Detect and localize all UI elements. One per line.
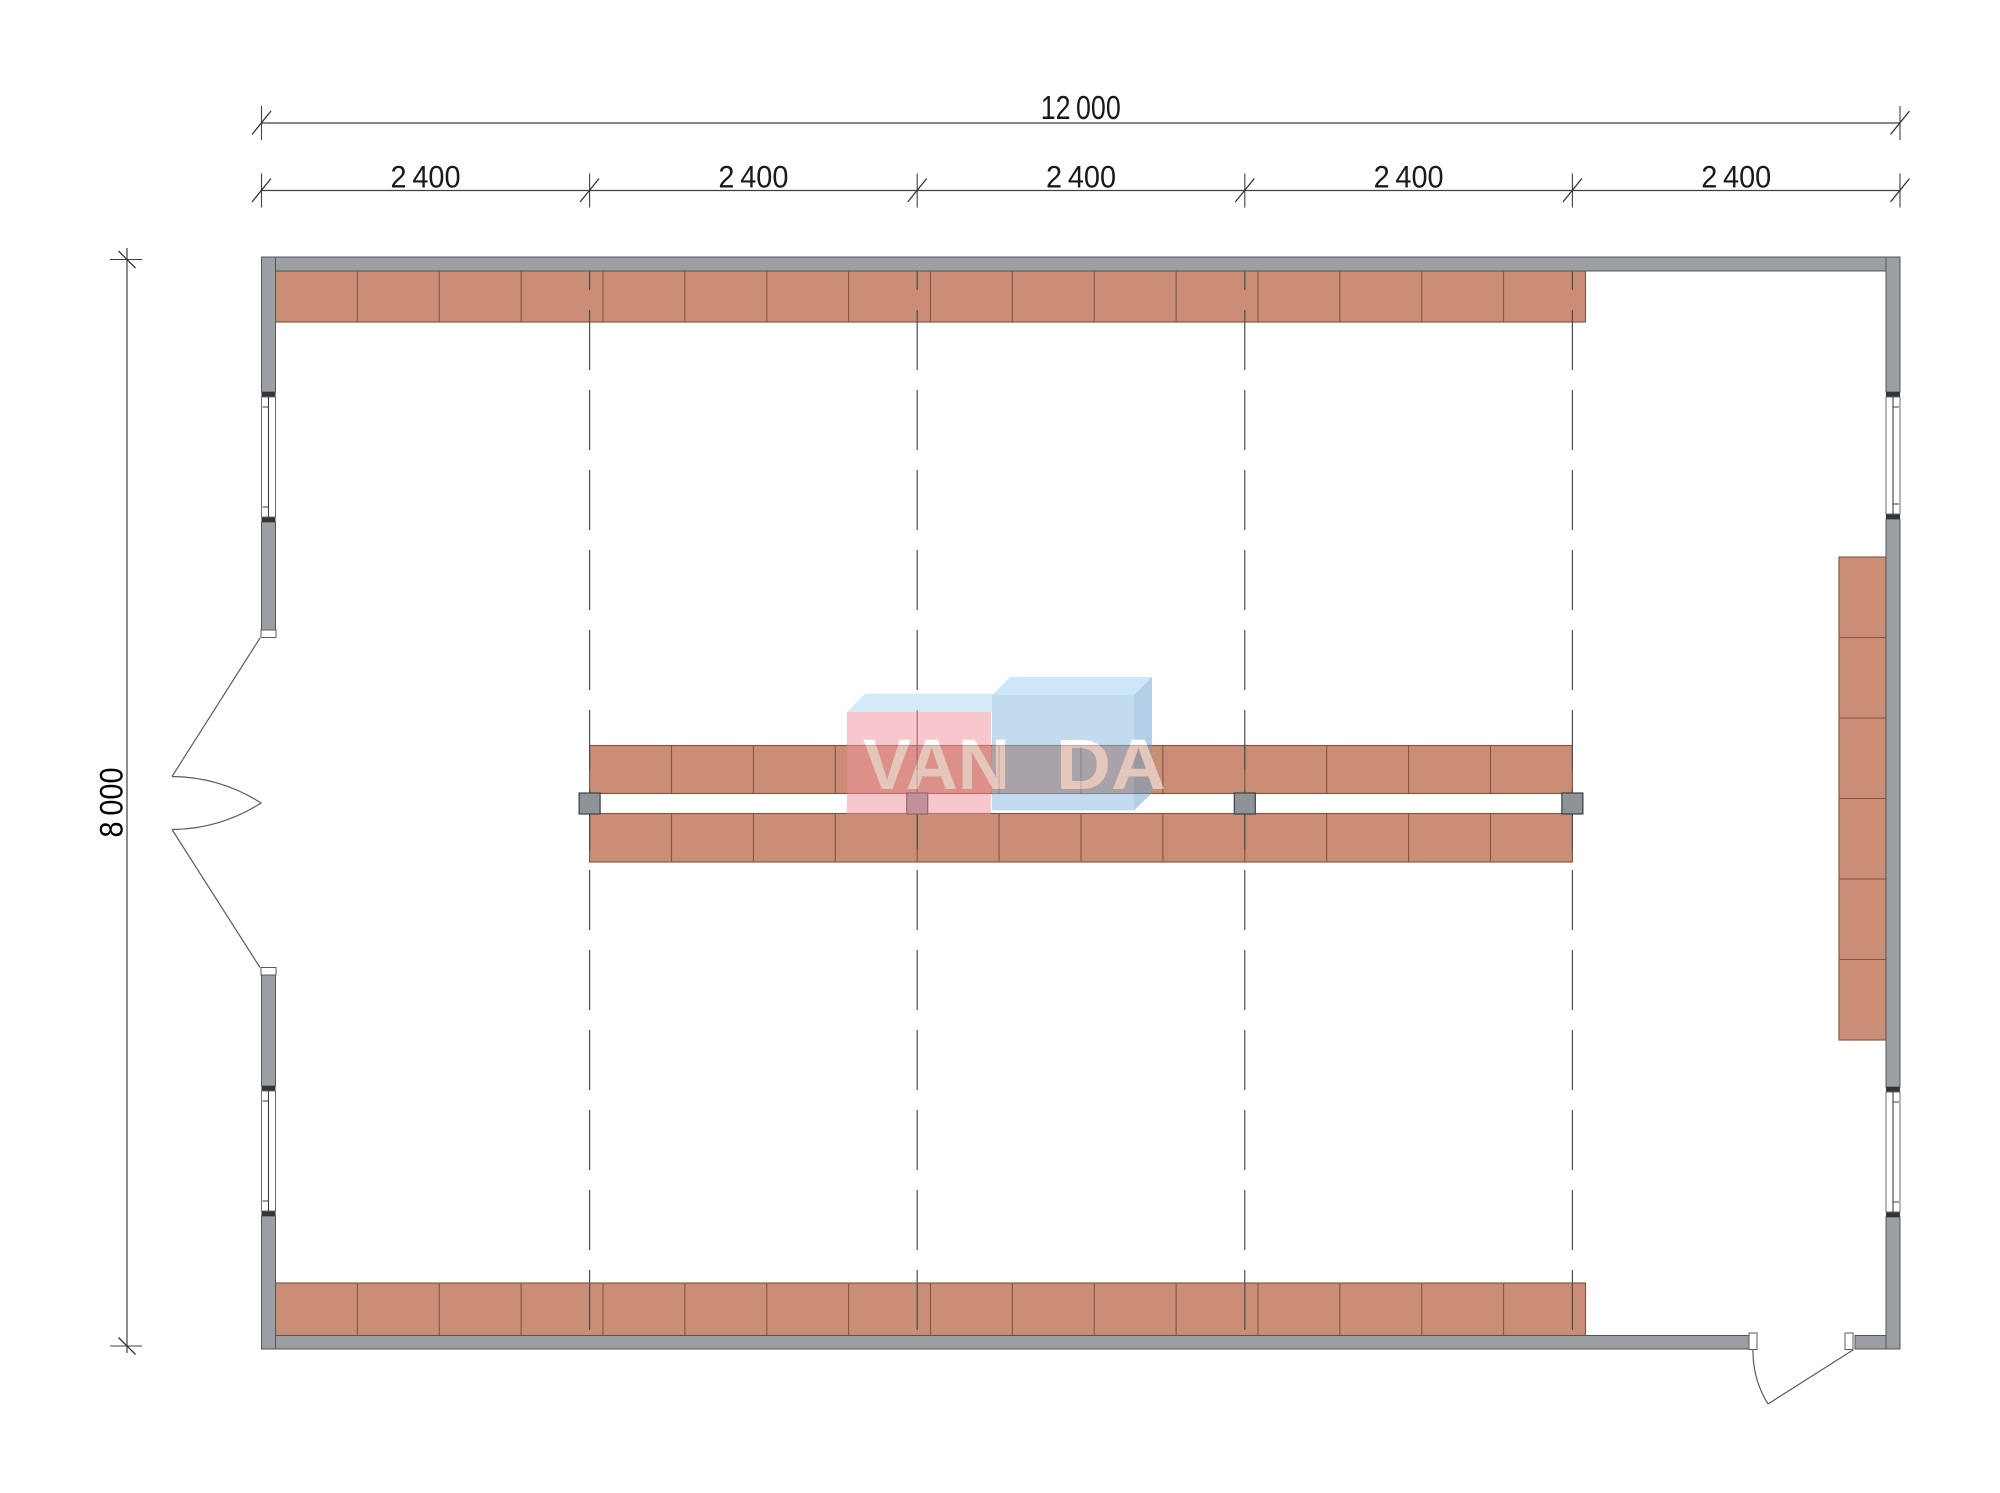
svg-text:12 000: 12 000 xyxy=(1041,89,1121,126)
svg-text:2 400: 2 400 xyxy=(1046,159,1116,195)
svg-text:VAN: VAN xyxy=(863,726,1010,805)
svg-text:2 400: 2 400 xyxy=(1374,159,1444,195)
svg-text:2 400: 2 400 xyxy=(718,159,788,195)
svg-text:2 400: 2 400 xyxy=(391,159,461,195)
svg-text:2 400: 2 400 xyxy=(1701,159,1771,195)
svg-text:DA: DA xyxy=(1056,726,1166,805)
svg-text:8 000: 8 000 xyxy=(94,768,130,838)
